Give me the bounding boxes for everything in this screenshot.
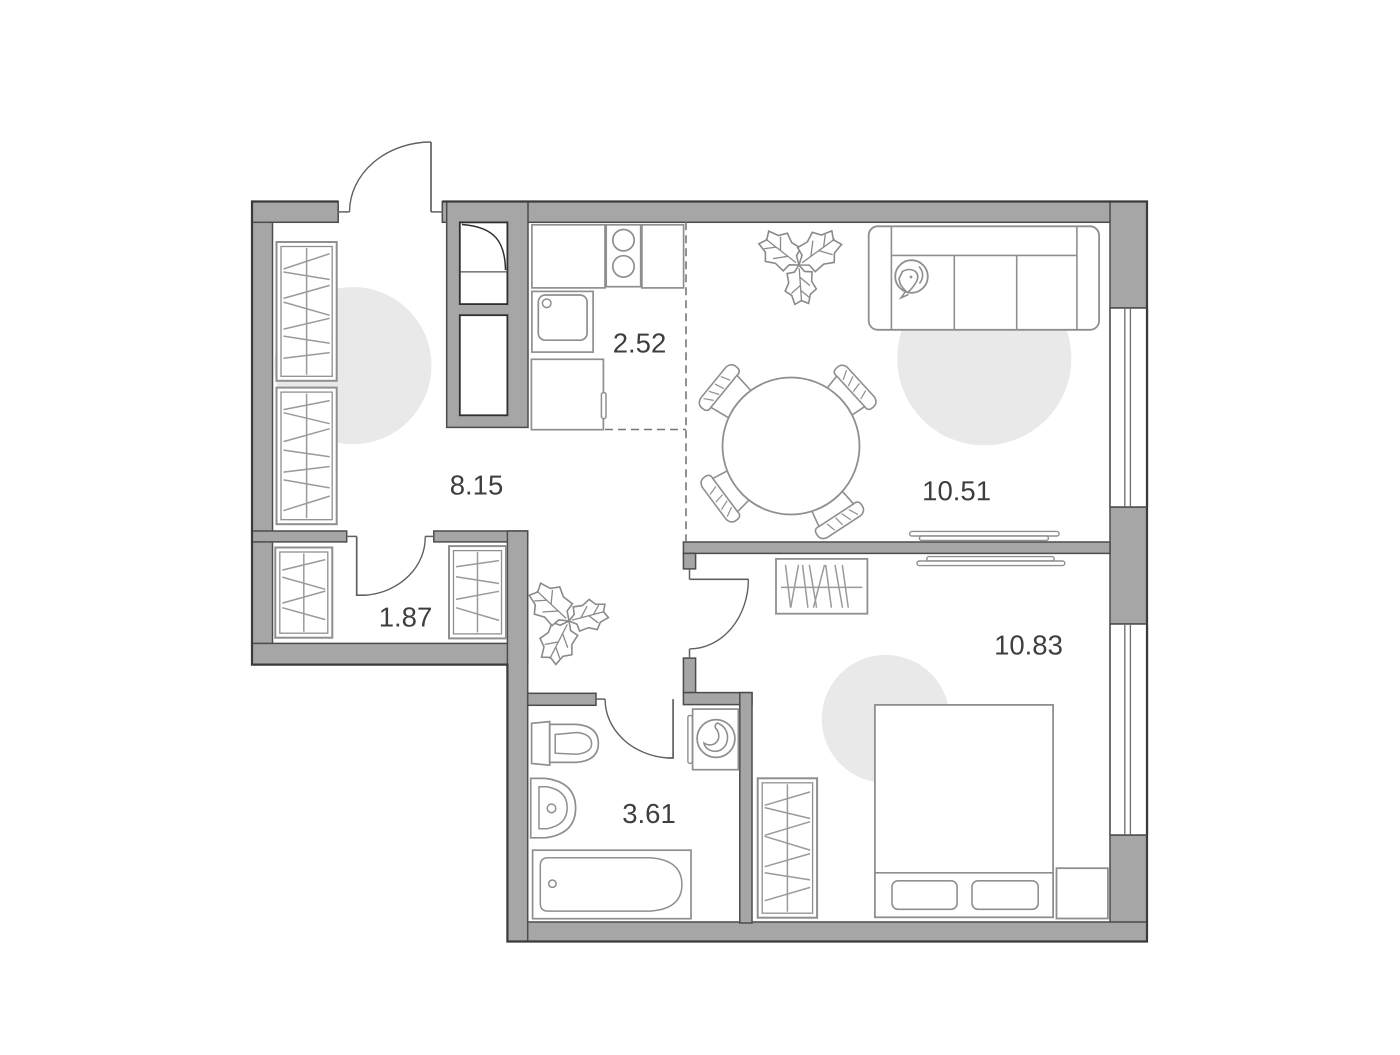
svg-text:8.15: 8.15: [450, 469, 504, 500]
svg-text:3.61: 3.61: [622, 798, 676, 829]
svg-text:1.87: 1.87: [379, 601, 433, 632]
svg-text:2.52: 2.52: [613, 327, 667, 358]
svg-text:10.51: 10.51: [922, 475, 991, 506]
svg-text:10.83: 10.83: [994, 629, 1063, 660]
